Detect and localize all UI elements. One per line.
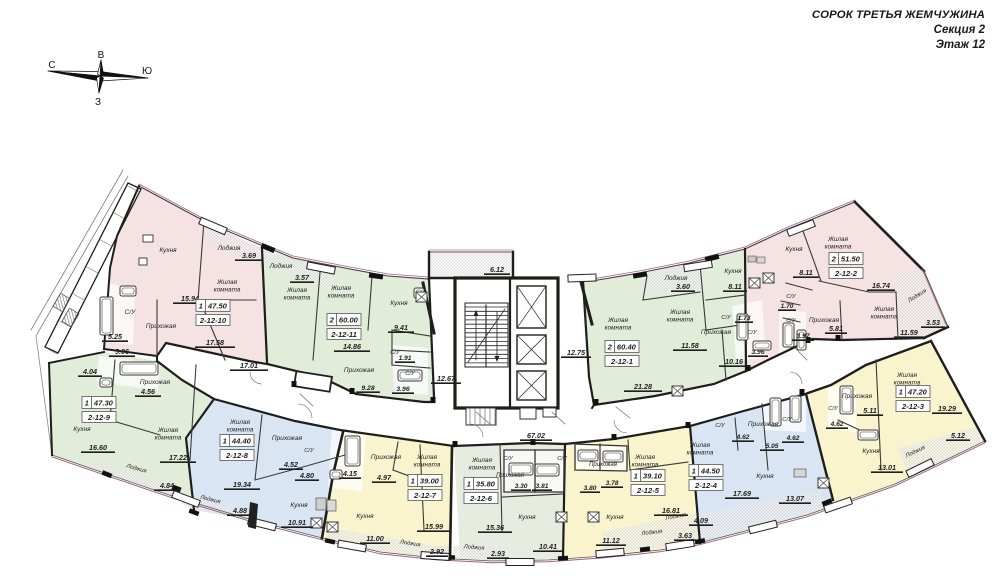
svg-text:2-12-7: 2-12-7 <box>413 491 437 500</box>
svg-text:Кухня: Кухня <box>518 514 536 521</box>
svg-text:15.99: 15.99 <box>425 522 443 531</box>
svg-text:Кухня: Кухня <box>356 513 374 520</box>
svg-text:3.53: 3.53 <box>926 318 940 327</box>
svg-text:Кухня: Кухня <box>290 502 308 509</box>
svg-text:комната: комната <box>227 427 254 434</box>
svg-text:3.69: 3.69 <box>242 251 256 260</box>
svg-text:11.00: 11.00 <box>366 534 383 543</box>
svg-text:Прихожая: Прихожая <box>589 462 618 468</box>
svg-text:21.28: 21.28 <box>633 382 652 391</box>
svg-text:Прихожая: Прихожая <box>748 421 779 428</box>
svg-text:1: 1 <box>467 479 471 488</box>
svg-text:6.12: 6.12 <box>490 265 504 274</box>
svg-text:2-12-3: 2-12-3 <box>901 402 925 411</box>
svg-text:Жилая: Жилая <box>896 372 918 379</box>
svg-text:Кухня: Кухня <box>390 300 408 307</box>
svg-text:5.11: 5.11 <box>863 406 876 415</box>
svg-text:13.01: 13.01 <box>878 463 896 472</box>
svg-text:2-12-2: 2-12-2 <box>834 269 858 278</box>
svg-text:Кухня: Кухня <box>862 448 880 455</box>
svg-text:Лоджия: Лоджия <box>664 274 688 282</box>
svg-text:Жилая: Жилая <box>827 236 849 243</box>
svg-text:16.60: 16.60 <box>89 443 107 452</box>
svg-text:Прихожая: Прихожая <box>140 379 171 386</box>
svg-text:С/У: С/У <box>557 456 568 462</box>
svg-text:комната: комната <box>155 435 182 442</box>
svg-text:Прихожая: Прихожая <box>371 454 402 461</box>
svg-text:5.12: 5.12 <box>951 431 965 440</box>
svg-text:13.07: 13.07 <box>786 494 805 503</box>
svg-text:С/У: С/У <box>721 315 732 321</box>
svg-text:4.88: 4.88 <box>232 506 247 515</box>
svg-text:Прихожая: Прихожая <box>146 323 177 330</box>
svg-text:39.00: 39.00 <box>420 476 440 485</box>
svg-text:4.97: 4.97 <box>376 473 392 482</box>
svg-text:11.12: 11.12 <box>602 536 619 545</box>
svg-text:17.01: 17.01 <box>240 361 258 370</box>
svg-text:3.97: 3.97 <box>796 333 810 340</box>
svg-text:5.06: 5.06 <box>115 347 130 356</box>
svg-text:1.73: 1.73 <box>738 315 751 322</box>
svg-text:2-12-8: 2-12-8 <box>225 451 249 460</box>
svg-text:1.70: 1.70 <box>781 303 794 310</box>
svg-text:1: 1 <box>899 387 903 396</box>
svg-text:1.91: 1.91 <box>399 355 412 362</box>
svg-text:комната: комната <box>284 295 311 302</box>
svg-text:комната: комната <box>667 317 694 324</box>
svg-text:3.30: 3.30 <box>515 483 528 490</box>
svg-text:19.29: 19.29 <box>938 404 956 413</box>
svg-text:12.75: 12.75 <box>567 348 586 357</box>
svg-text:1: 1 <box>199 301 203 310</box>
svg-text:Жилая: Жилая <box>157 427 179 434</box>
svg-text:51.50: 51.50 <box>841 254 861 263</box>
svg-text:комната: комната <box>632 462 659 469</box>
svg-text:4.09: 4.09 <box>693 516 708 525</box>
svg-text:1: 1 <box>692 466 696 475</box>
svg-text:Жилая: Жилая <box>873 306 895 313</box>
svg-text:3.81: 3.81 <box>536 483 549 490</box>
svg-text:11.58: 11.58 <box>681 341 698 350</box>
svg-text:2-12-6: 2-12-6 <box>469 494 493 503</box>
svg-text:С/У: С/У <box>125 309 137 316</box>
svg-text:9.41: 9.41 <box>394 323 408 332</box>
svg-text:комната: комната <box>214 287 241 294</box>
svg-text:Прихожая: Прихожая <box>842 393 873 400</box>
svg-text:С/У: С/У <box>405 371 416 377</box>
svg-text:Жилая: Жилая <box>607 317 629 324</box>
svg-text:8.11: 8.11 <box>799 268 812 277</box>
svg-text:С/У: С/У <box>715 423 726 429</box>
svg-text:Жилая: Жилая <box>634 454 656 461</box>
svg-text:Кухня: Кухня <box>756 473 774 480</box>
svg-text:10.91: 10.91 <box>288 518 306 527</box>
svg-text:3.60: 3.60 <box>676 282 690 291</box>
svg-text:1: 1 <box>411 476 415 485</box>
svg-text:4.62: 4.62 <box>786 435 800 442</box>
svg-text:19.34: 19.34 <box>233 480 251 489</box>
svg-text:2.92: 2.92 <box>429 547 444 556</box>
svg-text:10.16: 10.16 <box>725 357 744 366</box>
svg-text:4.56: 4.56 <box>140 387 156 396</box>
svg-text:С/У: С/У <box>786 294 797 300</box>
svg-text:2.93: 2.93 <box>490 549 505 558</box>
svg-text:Кухня: Кухня <box>73 426 91 433</box>
svg-text:С/У: С/У <box>304 448 315 454</box>
svg-text:Прихожая: Прихожая <box>496 473 525 479</box>
svg-text:Кухня: Кухня <box>724 268 742 275</box>
svg-text:47.20: 47.20 <box>907 387 928 396</box>
svg-text:комната: комната <box>871 314 898 321</box>
svg-text:4.04: 4.04 <box>82 367 97 376</box>
svg-text:35.80: 35.80 <box>476 479 496 488</box>
svg-text:Жилая: Жилая <box>669 309 691 316</box>
svg-text:11.59: 11.59 <box>900 328 917 337</box>
svg-text:2: 2 <box>329 315 335 324</box>
svg-text:комната: комната <box>414 462 441 469</box>
svg-text:3.96: 3.96 <box>396 386 409 393</box>
svg-text:3.57: 3.57 <box>295 273 310 282</box>
svg-text:Прихожая: Прихожая <box>344 367 375 374</box>
svg-text:4.84: 4.84 <box>159 481 174 490</box>
svg-text:9.28: 9.28 <box>361 385 374 392</box>
svg-text:17.22: 17.22 <box>169 453 187 462</box>
svg-text:Лоджия: Лоджия <box>269 262 293 270</box>
svg-text:Прихожая: Прихожая <box>272 435 303 442</box>
svg-text:Кухня: Кухня <box>159 247 177 254</box>
svg-text:17.58: 17.58 <box>206 338 224 347</box>
svg-text:2-12-9: 2-12-9 <box>87 413 111 422</box>
svg-text:Прихожая: Прихожая <box>809 317 840 324</box>
svg-text:комната: комната <box>469 465 496 472</box>
svg-text:15.36: 15.36 <box>486 523 505 532</box>
svg-text:Жилая: Жилая <box>416 454 438 461</box>
svg-text:комната: комната <box>825 244 852 251</box>
svg-text:3.63: 3.63 <box>678 531 692 540</box>
svg-text:2: 2 <box>831 254 837 263</box>
svg-text:Жилая: Жилая <box>286 287 308 294</box>
svg-text:5.05: 5.05 <box>766 443 779 450</box>
svg-text:5.25: 5.25 <box>108 332 123 341</box>
svg-text:4.62: 4.62 <box>830 421 844 428</box>
svg-text:2-12-10: 2-12-10 <box>199 316 227 325</box>
svg-text:3.78: 3.78 <box>606 480 619 487</box>
svg-text:4.62: 4.62 <box>736 434 750 441</box>
svg-text:2-12-11: 2-12-11 <box>330 330 357 339</box>
svg-text:С/У: С/У <box>828 406 839 412</box>
svg-text:Жилая: Жилая <box>229 419 251 426</box>
svg-text:67.02: 67.02 <box>527 431 545 440</box>
svg-text:1: 1 <box>85 398 89 407</box>
svg-text:Прихожая: Прихожая <box>701 329 732 336</box>
svg-text:С/У: С/У <box>503 456 514 462</box>
svg-text:Жилая: Жилая <box>471 457 493 464</box>
svg-text:2: 2 <box>607 342 613 351</box>
svg-text:60.40: 60.40 <box>617 342 637 351</box>
svg-text:С/У: С/У <box>747 330 758 336</box>
svg-text:комната: комната <box>687 450 714 457</box>
svg-text:2-12-4: 2-12-4 <box>694 481 718 490</box>
svg-text:3.96: 3.96 <box>751 349 764 356</box>
svg-text:5.81: 5.81 <box>829 324 843 333</box>
svg-text:39.10: 39.10 <box>643 471 663 480</box>
svg-text:1: 1 <box>634 471 638 480</box>
svg-text:3.80: 3.80 <box>584 485 597 492</box>
svg-text:2-12-1: 2-12-1 <box>610 357 633 366</box>
svg-text:10.41: 10.41 <box>539 542 557 551</box>
svg-text:16.74: 16.74 <box>872 281 890 290</box>
svg-text:комната: комната <box>605 325 632 332</box>
svg-text:Кухня: Кухня <box>606 514 624 521</box>
svg-text:44.50: 44.50 <box>700 466 721 475</box>
svg-text:С/У: С/У <box>786 318 797 324</box>
svg-text:Кухня: Кухня <box>785 246 803 253</box>
svg-text:4.15: 4.15 <box>342 469 358 478</box>
svg-text:Лоджия: Лоджия <box>217 244 241 252</box>
svg-text:47.50: 47.50 <box>207 301 228 310</box>
svg-text:С/У: С/У <box>782 417 793 423</box>
svg-text:60.00: 60.00 <box>339 315 359 324</box>
svg-text:2-12-5: 2-12-5 <box>636 486 660 495</box>
svg-text:Жилая: Жилая <box>689 442 711 449</box>
svg-text:Жилая: Жилая <box>330 285 352 292</box>
svg-text:17.69: 17.69 <box>733 489 751 498</box>
svg-text:47.30: 47.30 <box>93 398 114 407</box>
svg-text:Жилая: Жилая <box>216 279 238 286</box>
svg-text:44.40: 44.40 <box>231 436 252 445</box>
svg-text:комната: комната <box>328 293 355 300</box>
svg-text:8.11: 8.11 <box>728 282 741 291</box>
svg-text:1: 1 <box>223 436 227 445</box>
svg-text:12.67: 12.67 <box>437 374 456 383</box>
svg-text:4.80: 4.80 <box>299 471 314 480</box>
svg-text:4.52: 4.52 <box>283 460 298 469</box>
svg-text:14.86: 14.86 <box>343 342 362 351</box>
